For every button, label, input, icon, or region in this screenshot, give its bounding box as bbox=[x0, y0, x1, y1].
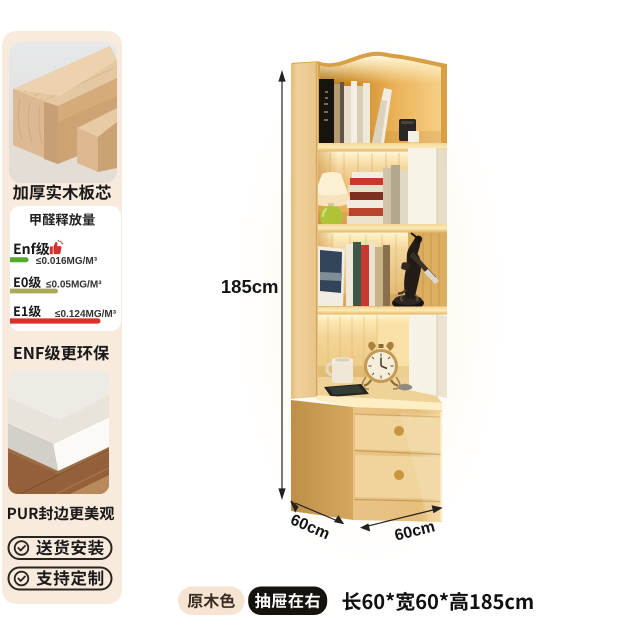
svg-text:185cm: 185cm bbox=[221, 276, 279, 297]
svg-text:≤0.124MG/M³: ≤0.124MG/M³ bbox=[55, 309, 117, 320]
svg-text:≤0.016MG/M³: ≤0.016MG/M³ bbox=[36, 256, 98, 267]
